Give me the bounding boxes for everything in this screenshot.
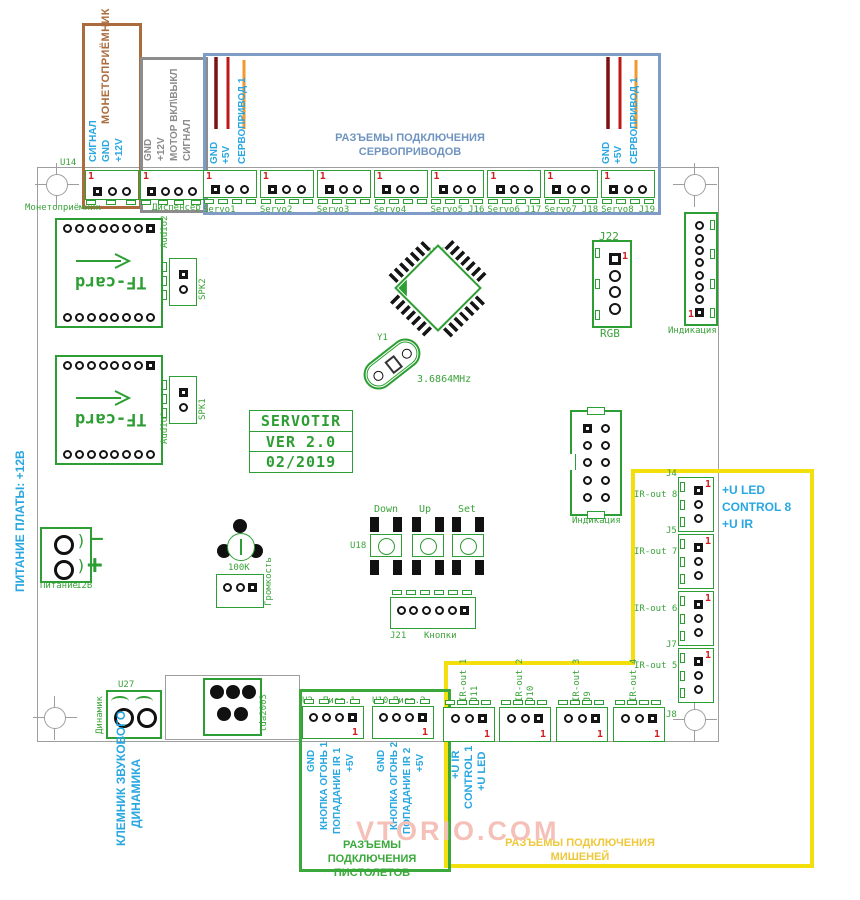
pin [282, 185, 291, 194]
pad [431, 199, 441, 204]
pad [680, 631, 685, 641]
pin [564, 714, 573, 723]
u27-ref: U27 [118, 680, 134, 690]
ir-right-label: IR-out 5 [634, 661, 676, 671]
pad [595, 310, 600, 320]
pin [451, 714, 460, 723]
ir-out-connector: 1 [556, 707, 608, 742]
ir-pads [501, 700, 547, 705]
servo-pins [490, 185, 538, 194]
pad [232, 199, 242, 204]
servo-connector: 1 [374, 170, 428, 198]
pin [694, 600, 703, 609]
pot-slot [240, 539, 242, 555]
dispenser-connector: 1 [140, 170, 204, 200]
pin [638, 185, 647, 194]
title-line1: SERVOTIR [249, 410, 353, 432]
pad [680, 614, 685, 624]
button-cap [460, 538, 477, 555]
amp-pin [234, 707, 248, 721]
servo-pins [263, 185, 311, 194]
power-connector: ) ) [40, 527, 92, 583]
pin [460, 606, 469, 615]
servo-pads [317, 199, 371, 204]
pad [434, 590, 444, 595]
pin [134, 361, 143, 370]
pin [322, 713, 331, 722]
keys-connector [390, 597, 476, 629]
dynamic-label: Динамик [95, 696, 105, 734]
ir-right-j: J5 [666, 526, 677, 536]
dispenser-pin-label: GND [143, 139, 155, 161]
pad [639, 700, 649, 705]
servo-pins [434, 185, 482, 194]
indication-label: Индикация [668, 326, 717, 336]
servo-j: J16 [468, 205, 484, 215]
servo-connector: 1 [431, 170, 485, 198]
tf-card-label: TF-card [75, 272, 147, 292]
power-label: Питание [40, 581, 78, 591]
pin [134, 450, 143, 459]
pad [406, 590, 416, 595]
pin [439, 185, 448, 194]
servo-pads [601, 199, 655, 204]
title-block: SERVOTIR VER 2.0 02/2019 [249, 410, 353, 473]
pin [309, 713, 318, 722]
pad [680, 539, 685, 549]
button-cap [420, 538, 437, 555]
pad [582, 700, 592, 705]
ir-pins [559, 714, 605, 723]
pin [695, 295, 704, 304]
button-label-down: Down [374, 504, 398, 515]
title-line3: 02/2019 [249, 451, 353, 473]
targets-caption-line2: МИШЕНЕЙ [505, 850, 655, 864]
pin [624, 185, 633, 194]
servo-pads [374, 199, 428, 204]
ir-bottom-label: IR-out 4 [629, 659, 639, 702]
pin [108, 187, 117, 196]
pin [694, 628, 703, 637]
pad [162, 380, 167, 390]
button-cap [378, 538, 395, 555]
button-set[interactable] [452, 517, 484, 575]
pin [147, 187, 156, 196]
pad [710, 220, 715, 230]
pin [609, 286, 621, 298]
pad [445, 199, 455, 204]
targets-right-note: +U LED CONTROL 8 +U IR [722, 482, 791, 533]
tf-pins-top [60, 224, 158, 233]
pad [559, 199, 569, 204]
pin [694, 571, 703, 580]
pin [609, 303, 621, 315]
servo-name: Servo5 [431, 205, 464, 215]
pin [87, 224, 96, 233]
u18-ref: U18 [350, 541, 366, 551]
pin [609, 270, 621, 282]
power-note: ПИТАНИЕ ПЛАТЫ: +12В [14, 450, 26, 592]
ir-pads [615, 700, 661, 705]
servo-name: Servo1 [203, 205, 236, 215]
pin [99, 224, 108, 233]
pin [122, 450, 131, 459]
pad [332, 199, 342, 204]
pin [75, 361, 84, 370]
pin [507, 714, 516, 723]
servo-connector: 1 [317, 170, 371, 198]
pad [651, 700, 661, 705]
ir-pins [616, 714, 662, 723]
servo-caption-line2: СЕРВОПРИВОДОВ [330, 145, 490, 159]
pad [602, 199, 612, 204]
watermark: VTORIO.COM [356, 816, 560, 847]
tf-card-module-1: TF-card [55, 355, 163, 465]
tf-pins-bottom [60, 450, 158, 459]
pad [417, 199, 427, 204]
pad [516, 199, 526, 204]
pin [601, 493, 610, 502]
pin [409, 606, 418, 615]
speaker-note-line2: ДИНАМИКА [130, 759, 142, 828]
pin [87, 313, 96, 322]
dispenser-board-label: Диспенсер [152, 203, 201, 213]
pin [248, 583, 257, 592]
note-line: CONTROL 8 [722, 499, 791, 516]
ir-right-j: J7 [666, 640, 677, 650]
pin [635, 714, 644, 723]
pistol2-pin-label: GND [376, 750, 388, 772]
power-voltage: 12В [76, 581, 92, 591]
button-label-set: Set [458, 504, 476, 515]
pad [304, 699, 314, 704]
pad [627, 700, 637, 705]
dispenser-pin-label: +12V [156, 137, 168, 161]
pin [110, 313, 119, 322]
servo-pins [320, 185, 368, 194]
servo-pins [604, 185, 652, 194]
servo-connector: 1 [260, 170, 314, 198]
pad [513, 700, 523, 705]
amp-pin [242, 685, 256, 699]
pin [63, 450, 72, 459]
pin [478, 714, 487, 723]
pad [595, 248, 600, 258]
pin [581, 185, 590, 194]
pin [694, 671, 703, 680]
pin [621, 714, 630, 723]
indication-side-pads [710, 220, 715, 318]
pin [695, 283, 704, 292]
terminal-arc [135, 696, 153, 707]
pin [179, 285, 188, 294]
pin [240, 185, 249, 194]
ir-out-connector: 1 [499, 707, 551, 742]
pad [319, 699, 329, 704]
pin [99, 313, 108, 322]
pin [534, 714, 543, 723]
pad [573, 199, 583, 204]
pistol-pads [374, 699, 430, 704]
pad [335, 699, 345, 704]
j21-ref: J21 [390, 631, 406, 641]
pin [583, 441, 592, 450]
ir-bottom-label: IR-out 3 [572, 659, 582, 702]
button-pad [412, 560, 421, 575]
pad [481, 700, 491, 705]
power-pin-plus [54, 560, 74, 580]
pistols-caption-line2: ПИСТОЛЕТОВ [302, 866, 442, 880]
coin-board-label: Монетоприёмник [25, 203, 101, 213]
pin [695, 271, 704, 280]
volume-connector [216, 574, 264, 608]
button-pad [370, 560, 379, 575]
pin [601, 441, 610, 450]
note-line: +U LED [722, 482, 791, 499]
pad [710, 308, 715, 318]
j21-pads [392, 590, 472, 595]
pad [457, 700, 467, 705]
idc-indication-connector [570, 410, 622, 516]
pad [488, 199, 498, 204]
pad [420, 590, 430, 595]
servo-name: Servo3 [317, 205, 350, 215]
speaker-note-line1: КЛЕМНИК ЗВУКОВОГО [115, 711, 127, 846]
servo-wire-label: GND [209, 142, 221, 164]
coin-pin-label: GND [101, 140, 113, 162]
pad [346, 199, 356, 204]
pad [218, 199, 228, 204]
spk2-pins [170, 263, 196, 301]
pad [595, 279, 600, 289]
servo-name: Servo4 [374, 205, 407, 215]
pin [211, 185, 220, 194]
pad [303, 199, 313, 204]
pad [275, 199, 285, 204]
pin [348, 713, 357, 722]
pin [87, 450, 96, 459]
pad [587, 199, 597, 204]
amp-pin [226, 685, 240, 699]
rgb-connector: 1 [592, 240, 632, 328]
arrow-icon [73, 252, 137, 270]
pin [694, 685, 703, 694]
pad [680, 557, 685, 567]
pin [392, 713, 401, 722]
pin [63, 224, 72, 233]
button-label-up: Up [419, 504, 431, 515]
pad [594, 700, 604, 705]
pin [93, 187, 102, 196]
pad [162, 394, 167, 404]
pad [710, 249, 715, 259]
pad [680, 574, 685, 584]
pin [63, 313, 72, 322]
ir-side-pads [680, 482, 685, 527]
pin [146, 224, 155, 233]
pin [418, 713, 427, 722]
coin-pin-label: +12V [114, 138, 126, 162]
ir-pins [502, 714, 548, 723]
pad [246, 199, 256, 204]
servo-label-row: Servo1 Servo2 Servo3 Servo4 Servo5J16 Se… [203, 205, 655, 215]
pad [530, 199, 540, 204]
pin [134, 224, 143, 233]
power-plus: + [87, 550, 103, 580]
rgb-label: RGB [600, 327, 620, 340]
pin [188, 187, 197, 196]
pin [552, 185, 561, 194]
pin [583, 476, 592, 485]
title-line2: VER 2.0 [249, 431, 353, 453]
pad [680, 517, 685, 527]
pad [448, 590, 458, 595]
button-pad [435, 560, 444, 575]
keys-label: Кнопки [424, 631, 457, 641]
button-up[interactable] [412, 517, 444, 575]
tf-card-module-2: TF-card [55, 218, 163, 328]
pad [615, 700, 625, 705]
pad [141, 200, 151, 205]
pin [325, 185, 334, 194]
pin [583, 458, 592, 467]
pin [609, 253, 621, 265]
pin [179, 388, 188, 397]
servo-wire-label: СЕРВОПРИВОД 1 [629, 78, 641, 164]
pin [179, 403, 188, 412]
pin [223, 583, 232, 592]
note-line: +U IR [722, 516, 791, 533]
pin [99, 450, 108, 459]
idc-notch [569, 454, 576, 470]
pin [146, 313, 155, 322]
audio2-label: Audio2 [160, 215, 170, 248]
targets-bottom-note: +U LED [476, 752, 488, 791]
ir-out-connector: 1 [613, 707, 665, 742]
pin [110, 224, 119, 233]
dispenser-pins [143, 187, 201, 196]
pistol1-pin-label: +5V [345, 754, 357, 772]
speaker-pin [137, 708, 157, 728]
servo-wire-label: СЕРВОПРИВОД 1 [237, 78, 249, 164]
pin [694, 500, 703, 509]
ir-side-pads [680, 596, 685, 641]
servo-caption: РАЗЪЕМЫ ПОДКЛЮЧЕНИЯ СЕРВОПРИВОДОВ [330, 131, 490, 159]
pin [63, 361, 72, 370]
power-arc: ) [76, 531, 86, 550]
pin [353, 185, 362, 194]
pad [710, 279, 715, 289]
servo-connector: 1 [544, 170, 598, 198]
idc-pins [578, 420, 614, 506]
idc-indication-label: Индикация [572, 516, 620, 526]
rgb-side-pads [595, 248, 600, 320]
pin [382, 185, 391, 194]
button-pad [435, 517, 444, 532]
ir-side-pads [680, 653, 685, 698]
pin [110, 361, 119, 370]
ir-out-connector: 1 [678, 648, 714, 703]
pad [392, 590, 402, 595]
targets-bottom-note: +U IR [450, 751, 462, 779]
y1-ref: Y1 [377, 333, 388, 343]
pistol1-pin-label: КНОПКА ОГОНЬ 1 [319, 742, 331, 830]
pin [521, 714, 530, 723]
servo-j: J19 [639, 205, 655, 215]
pad [680, 688, 685, 698]
ir-out-connector: 1 [678, 534, 714, 589]
pad [680, 671, 685, 681]
pad [389, 699, 399, 704]
pistol1-pin-label: GND [306, 750, 318, 772]
pad [459, 199, 469, 204]
pad [462, 590, 472, 595]
pad [162, 276, 167, 286]
pin [694, 486, 703, 495]
indication-connector: 1 [684, 212, 718, 326]
pad [680, 596, 685, 606]
pad [318, 199, 328, 204]
pistol2-pins [375, 713, 431, 722]
servo-pins [377, 185, 425, 194]
pot-trimmer[interactable] [227, 533, 255, 561]
pad [545, 199, 555, 204]
button-pad [393, 560, 402, 575]
terminal-arc [111, 696, 129, 707]
spk1-pins [170, 381, 196, 419]
pin [465, 714, 474, 723]
pad [162, 290, 167, 300]
coin-pin-label: СИГНАЛ [88, 120, 100, 162]
pin [648, 714, 657, 723]
pin [695, 258, 704, 267]
u14-ref: U14 [60, 158, 76, 168]
servo-pads [260, 199, 314, 204]
spk1-label: SPK1 [198, 398, 208, 420]
amp-label: tda2003 [259, 694, 269, 732]
servo-j: J18 [582, 205, 598, 215]
pin [225, 185, 234, 194]
pin [397, 606, 406, 615]
pad [350, 699, 360, 704]
servo-pins [547, 185, 595, 194]
pin [453, 185, 462, 194]
ir-right-label: IR-out 6 [634, 604, 676, 614]
mcu-chip [394, 244, 482, 332]
power-minus: – [92, 528, 103, 549]
pad [289, 199, 299, 204]
pad [375, 199, 385, 204]
pin [591, 714, 600, 723]
pad [537, 700, 547, 705]
pin [510, 185, 519, 194]
button-down[interactable] [370, 517, 402, 575]
pin [601, 424, 610, 433]
ir-out-connector: 1 [678, 477, 714, 532]
pin [339, 185, 348, 194]
servo-connector: 1 [203, 170, 257, 198]
servo-name: Servo8 [601, 205, 634, 215]
dispenser-pin-label: СИГНАЛ [182, 119, 194, 161]
pin [236, 583, 245, 592]
ir-out-connector: 1 [443, 707, 495, 742]
power-pin-minus [54, 535, 74, 555]
servo-pins [206, 185, 254, 194]
pad [616, 199, 626, 204]
servo-name: Servo6 [487, 205, 520, 215]
pin [405, 713, 414, 722]
pin [578, 714, 587, 723]
